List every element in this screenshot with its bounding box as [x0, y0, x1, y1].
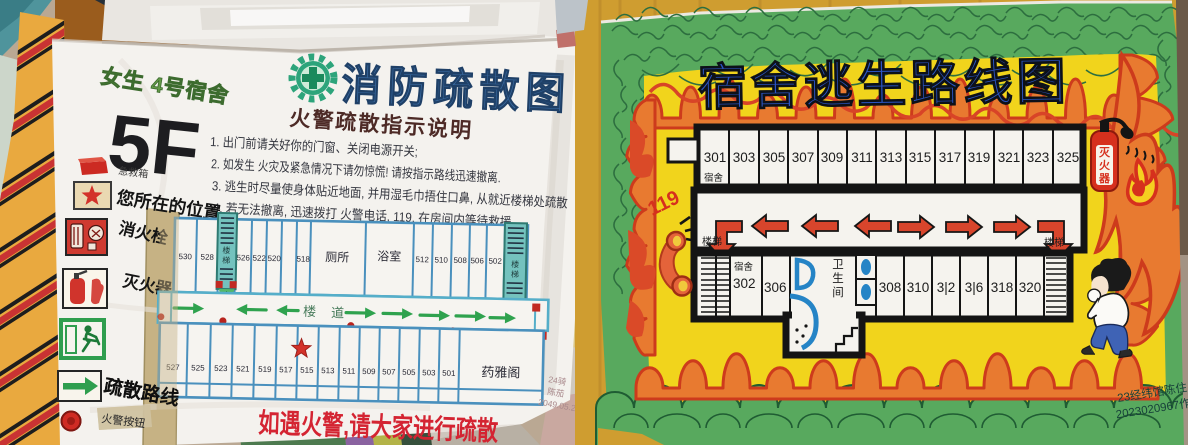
svg-text:道: 道 [331, 305, 344, 320]
svg-text:311: 311 [851, 150, 873, 165]
svg-text:楼梯: 楼梯 [702, 235, 722, 248]
svg-text:303: 303 [733, 150, 756, 165]
svg-text:526: 526 [236, 253, 250, 262]
svg-text:310: 310 [907, 280, 930, 295]
svg-text:药雅阁: 药雅阁 [481, 364, 520, 380]
svg-text:510: 510 [434, 255, 448, 264]
svg-text:317: 317 [939, 150, 962, 165]
svg-text:306: 306 [764, 280, 787, 295]
svg-text:530: 530 [178, 252, 192, 261]
svg-text:515: 515 [300, 366, 314, 375]
svg-text:520: 520 [267, 254, 281, 263]
svg-text:507: 507 [382, 367, 396, 376]
svg-text:512: 512 [415, 255, 429, 264]
svg-text:楼: 楼 [303, 304, 316, 319]
svg-text:305: 305 [763, 150, 786, 165]
svg-text:宿舍逃生路线图: 宿舍逃生路线图 [697, 54, 1070, 116]
svg-text:502: 502 [488, 257, 502, 266]
svg-text:505: 505 [402, 368, 416, 377]
svg-text:3|2: 3|2 [937, 280, 956, 295]
svg-text:511: 511 [342, 367, 355, 376]
svg-text:525: 525 [191, 363, 205, 372]
svg-text:506: 506 [470, 256, 484, 265]
svg-text:517: 517 [279, 365, 293, 374]
svg-text:319: 319 [968, 150, 991, 165]
svg-text:楼: 楼 [222, 245, 230, 255]
svg-text:楼: 楼 [511, 259, 519, 269]
svg-text:308: 308 [879, 280, 902, 295]
svg-text:521: 521 [236, 364, 250, 373]
svg-text:519: 519 [258, 365, 272, 374]
svg-text:313: 313 [880, 150, 903, 165]
svg-text:楼梯: 楼梯 [1044, 236, 1064, 249]
svg-text:梯: 梯 [511, 269, 519, 279]
svg-text:307: 307 [792, 150, 815, 165]
svg-text:宿舍: 宿舍 [734, 261, 754, 273]
svg-text:501: 501 [442, 369, 456, 378]
svg-text:灭火器: 灭火器 [1098, 146, 1111, 185]
svg-text:卫生间: 卫生间 [832, 259, 844, 299]
svg-text:301: 301 [704, 150, 727, 165]
svg-text:厕所: 厕所 [325, 250, 349, 264]
svg-text:318: 318 [991, 280, 1014, 295]
svg-text:浴室: 浴室 [377, 248, 401, 263]
svg-text:523: 523 [214, 364, 228, 373]
svg-text:320: 320 [1019, 280, 1042, 295]
svg-text:325: 325 [1057, 150, 1080, 165]
svg-text:5F: 5F [104, 97, 204, 194]
svg-text:消防疏散图: 消防疏散图 [341, 61, 573, 119]
svg-text:522: 522 [252, 254, 266, 263]
svg-text:309: 309 [821, 150, 844, 165]
svg-text:513: 513 [321, 366, 335, 375]
svg-text:323: 323 [1027, 150, 1050, 165]
svg-text:503: 503 [422, 368, 436, 377]
svg-text:3|6: 3|6 [965, 280, 984, 295]
svg-text:302: 302 [733, 276, 756, 291]
svg-text:508: 508 [453, 256, 467, 265]
svg-text:宿舍: 宿舍 [704, 172, 724, 184]
svg-text:321: 321 [998, 150, 1021, 165]
svg-text:518: 518 [296, 255, 310, 264]
svg-text:315: 315 [909, 150, 932, 165]
svg-text:509: 509 [362, 367, 376, 376]
svg-text:528: 528 [200, 253, 214, 262]
svg-text:梯: 梯 [222, 255, 230, 265]
